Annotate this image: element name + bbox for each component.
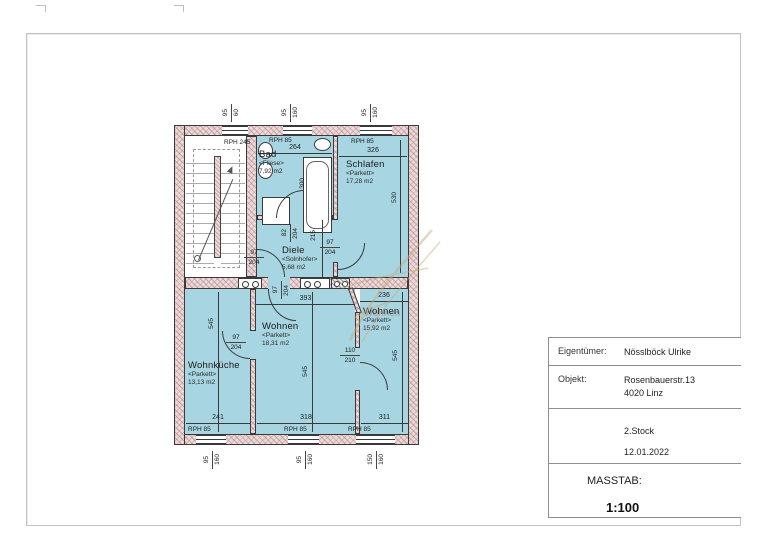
rph-label-wohnen: RPH 85 bbox=[284, 426, 307, 433]
scale-value: 1:100 bbox=[606, 500, 639, 515]
title-block-floor-row: 2.Stock 12.01.2022 bbox=[549, 409, 741, 464]
dim-line bbox=[257, 423, 355, 424]
label-wohnen2: WohnenWohnen <Parkett> 15,92 m2 bbox=[363, 306, 399, 333]
window-wohnen bbox=[288, 435, 319, 444]
door-dim-wohnen2: 110210 bbox=[339, 347, 361, 364]
date-value: 12.01.2022 bbox=[624, 447, 669, 457]
object-label: Objekt: bbox=[558, 374, 587, 384]
door-gap-kueche bbox=[250, 331, 256, 359]
label-schlafen: Schlafen <Parkett> 17,28 m2 bbox=[346, 159, 385, 186]
flue-icon bbox=[304, 281, 311, 288]
crop-mark bbox=[174, 5, 184, 12]
wall-bad-schlafen bbox=[333, 136, 338, 220]
dim-wohnen-top: 393 bbox=[256, 295, 355, 303]
dim-bathtub: 300 bbox=[299, 176, 307, 194]
drawing-canvas: 264 326 393 236 241 318 311 530 545 545 … bbox=[0, 0, 768, 560]
window-dim-schlafen: 95160 bbox=[361, 101, 380, 124]
dim-line bbox=[339, 156, 407, 157]
rph-label-wohnen2: RPH 85 bbox=[348, 426, 371, 433]
flue-icon bbox=[314, 281, 321, 288]
dim-schlafen-height: 530 bbox=[391, 190, 399, 208]
floor-value: 2.Stock bbox=[624, 426, 654, 436]
dim-schlafen-width: 326 bbox=[339, 147, 407, 155]
object-value: Rosenbauerstr.13 4020 Linz bbox=[624, 374, 695, 400]
dim-wohnen2-bottom: 311 bbox=[361, 414, 408, 422]
window-dim-wohnen2: 150160 bbox=[367, 448, 386, 471]
window-kueche bbox=[196, 435, 226, 444]
door-dim-schlafen: 97204 bbox=[319, 239, 341, 256]
window-bad bbox=[283, 126, 312, 135]
chimney-block-hatched bbox=[331, 278, 350, 289]
owner-value: Nösslböck Ulrike bbox=[624, 346, 691, 359]
dim-kueche-bottom: 241 bbox=[186, 414, 250, 422]
wall-wohnen-divider-top bbox=[355, 312, 360, 348]
label-diele: Diele <Solnhofer> 5,68 m2 bbox=[282, 245, 317, 272]
window-stair bbox=[222, 126, 248, 135]
wall-left bbox=[174, 125, 185, 445]
title-block-scale-row: MASSTAB: 1:100 bbox=[549, 464, 741, 517]
dim-line bbox=[361, 423, 408, 424]
owner-label: Eigentümer: bbox=[558, 346, 607, 356]
bathtub-inner bbox=[306, 161, 329, 229]
window-dim-wohnen: 95160 bbox=[296, 448, 315, 471]
dim-line bbox=[400, 140, 401, 273]
rph-label-kueche: RPH 85 bbox=[188, 426, 211, 433]
wall-kueche-bottom bbox=[250, 359, 256, 434]
flue-icon bbox=[342, 281, 348, 287]
title-block-owner-row: Eigentümer: Nösslböck Ulrike bbox=[549, 338, 741, 366]
flue-icon bbox=[334, 281, 340, 287]
crop-mark bbox=[36, 5, 46, 12]
rph-label-schlafen: RPH 85 bbox=[351, 138, 374, 145]
window-schlafen bbox=[360, 126, 392, 135]
wall-middle bbox=[185, 277, 408, 289]
flue-icon bbox=[252, 281, 259, 288]
window-dim-stair: 9560 bbox=[222, 102, 241, 124]
wall-right bbox=[408, 125, 419, 445]
dim-diele-height: 215 bbox=[310, 228, 318, 246]
dim-line bbox=[360, 301, 408, 302]
dim-wohnen-bottom: 318 bbox=[257, 414, 355, 422]
label-wohnkueche: Wohnküche <Parkett> 13,13 m2 bbox=[188, 360, 240, 387]
dim-wohnen-height: 545 bbox=[302, 364, 310, 382]
label-bad: Bad <Fliese> 7,92 m2 bbox=[259, 149, 284, 176]
stair-start-circle bbox=[194, 255, 201, 262]
dim-kueche-height: 545 bbox=[208, 316, 216, 334]
rph-label-stair: RPH 245 bbox=[224, 139, 250, 146]
chimney-block bbox=[300, 278, 330, 289]
dim-wohnen2-height: 545 bbox=[392, 348, 400, 366]
dim-line bbox=[402, 292, 403, 432]
door-dim-stair: 97204 bbox=[243, 249, 265, 266]
dim-line bbox=[312, 292, 313, 432]
window-dim-bad: 95160 bbox=[281, 101, 300, 124]
label-wohnen: Wohnen <Parkett> 18,31 m2 bbox=[262, 321, 298, 348]
door-dim-wohnen: 97204 bbox=[272, 279, 291, 301]
chimney-block bbox=[238, 278, 262, 289]
rph-label-bad: RPH 85 bbox=[269, 137, 292, 144]
window-dim-kueche: 95160 bbox=[203, 448, 222, 471]
flue-icon bbox=[242, 281, 249, 288]
dim-line bbox=[256, 304, 355, 305]
window-wohnen2 bbox=[356, 435, 395, 444]
title-block: Eigentümer: Nösslböck Ulrike Objekt: Ros… bbox=[548, 337, 741, 518]
title-block-object-row: Objekt: Rosenbauerstr.13 4020 Linz bbox=[549, 366, 741, 409]
door-dim-kueche: 97204 bbox=[225, 334, 247, 351]
dim-wohnen2-top: 236 bbox=[360, 292, 408, 300]
stair-treads-left bbox=[186, 154, 214, 264]
door-dim-bad: 82204 bbox=[281, 221, 300, 245]
scale-label: MASSTAB: bbox=[587, 475, 642, 487]
